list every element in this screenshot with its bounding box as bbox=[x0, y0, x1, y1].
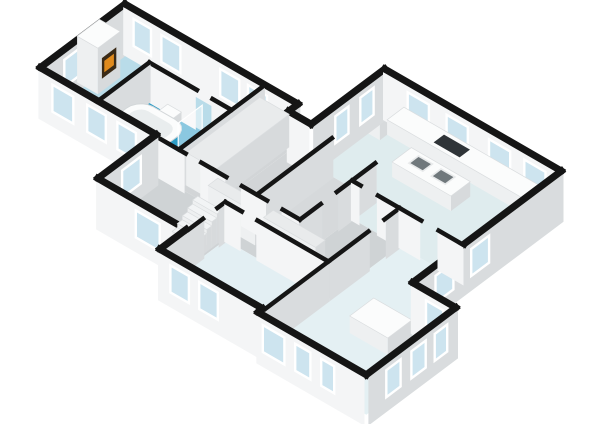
floor-plan-page bbox=[0, 0, 600, 424]
floor-plan-3d-view bbox=[0, 0, 600, 424]
floor-plan-svg bbox=[0, 0, 600, 424]
kitchen-hall-wall-a bbox=[351, 181, 361, 226]
bedroom-2-south-wall-window-3 bbox=[321, 359, 334, 394]
